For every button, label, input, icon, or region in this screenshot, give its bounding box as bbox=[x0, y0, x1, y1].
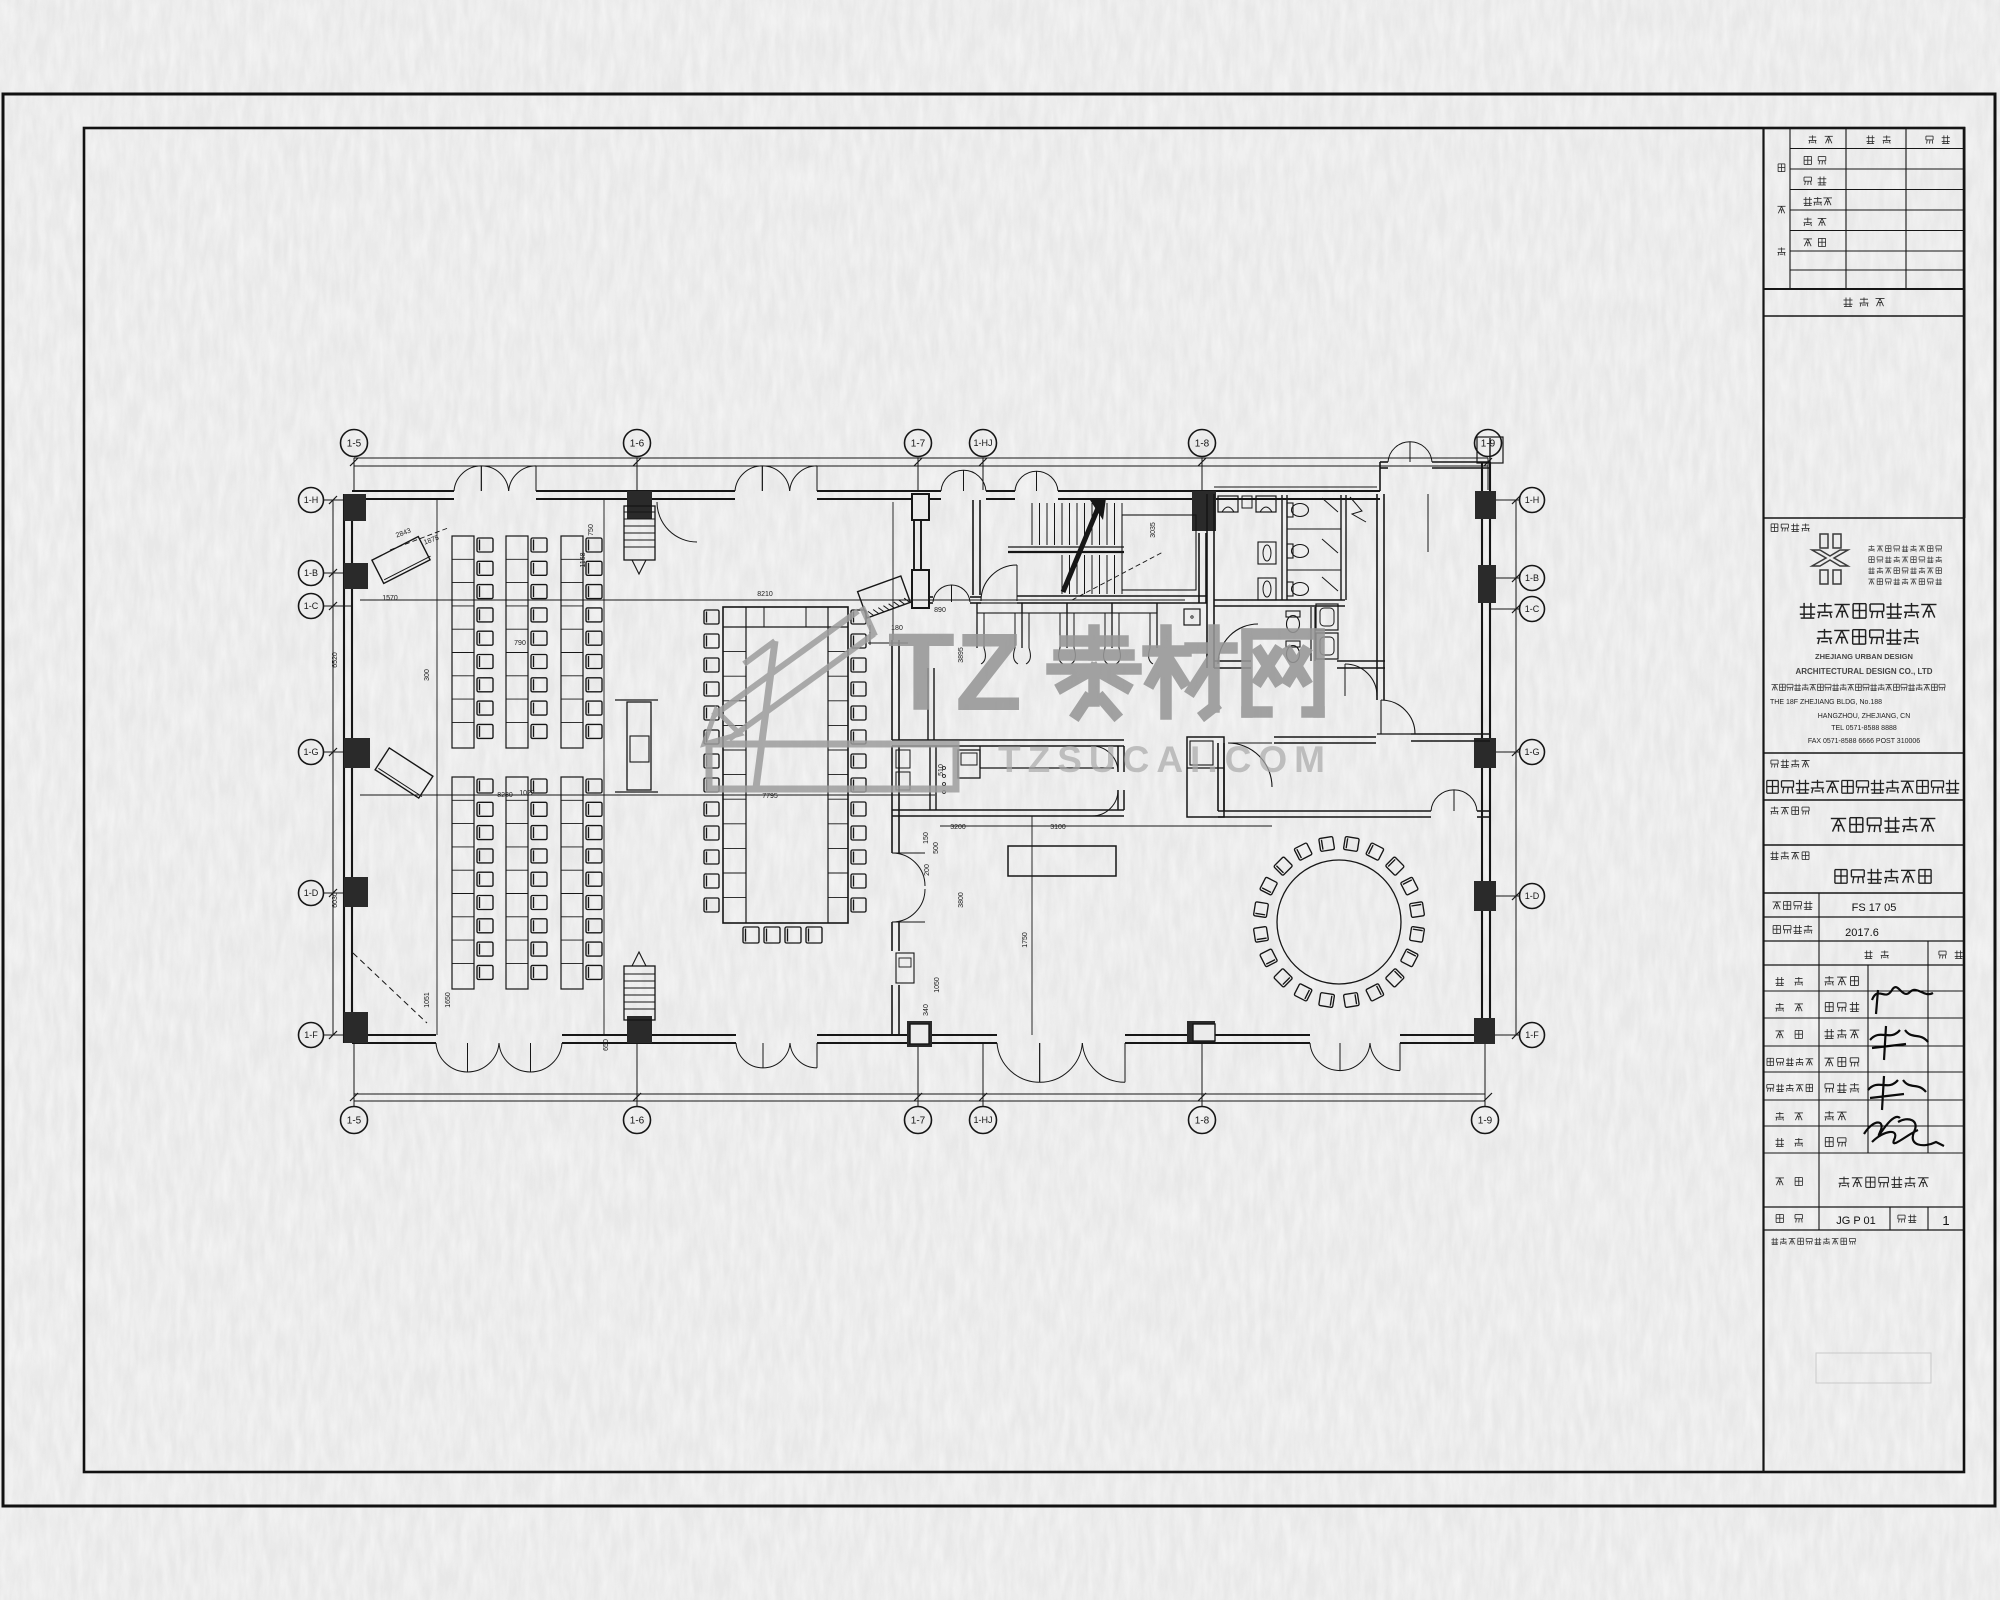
svg-text:1022: 1022 bbox=[519, 790, 535, 797]
svg-text:1-H: 1-H bbox=[304, 495, 319, 505]
svg-text:6030: 6030 bbox=[332, 892, 339, 908]
svg-text:1-B: 1-B bbox=[1525, 573, 1539, 583]
svg-text:790: 790 bbox=[514, 640, 526, 647]
svg-text:1-8: 1-8 bbox=[1195, 1116, 1210, 1127]
svg-text:3100: 3100 bbox=[1050, 824, 1066, 831]
svg-text:1-5: 1-5 bbox=[347, 1116, 362, 1127]
svg-text:7795: 7795 bbox=[762, 793, 778, 800]
svg-text:HANGZHOU, ZHEJIANG, CN: HANGZHOU, ZHEJIANG, CN bbox=[1818, 713, 1911, 720]
svg-text:300: 300 bbox=[424, 669, 431, 681]
svg-text:1-G: 1-G bbox=[303, 747, 318, 757]
svg-text:650: 650 bbox=[603, 1039, 610, 1051]
svg-text:1-7: 1-7 bbox=[911, 439, 926, 450]
svg-text:TZSUCAI.COM: TZSUCAI.COM bbox=[998, 739, 1332, 780]
svg-text:1-8: 1-8 bbox=[1195, 439, 1210, 450]
svg-text:1-5: 1-5 bbox=[347, 439, 362, 450]
svg-text:1-9: 1-9 bbox=[1481, 439, 1496, 450]
svg-text:3800: 3800 bbox=[958, 892, 965, 908]
svg-text:1750: 1750 bbox=[1022, 932, 1029, 948]
svg-text:1-C: 1-C bbox=[304, 601, 319, 611]
svg-text:1-H: 1-H bbox=[1525, 495, 1540, 505]
svg-text:THE 18F ZHEJIANG BLDG, No.188: THE 18F ZHEJIANG BLDG, No.188 bbox=[1770, 699, 1882, 706]
svg-text:1-9: 1-9 bbox=[1478, 1116, 1493, 1127]
svg-text:1-D: 1-D bbox=[304, 888, 319, 898]
svg-text:TEL 0571-8588 8888: TEL 0571-8588 8888 bbox=[1831, 725, 1897, 732]
svg-text:1650: 1650 bbox=[445, 992, 452, 1008]
svg-text:1-6: 1-6 bbox=[630, 1116, 645, 1127]
svg-text:1-G: 1-G bbox=[1524, 747, 1539, 757]
svg-text:1-B: 1-B bbox=[304, 568, 318, 578]
svg-text:ZHEJIANG URBAN DESIGN: ZHEJIANG URBAN DESIGN bbox=[1815, 652, 1913, 661]
svg-text:8210: 8210 bbox=[757, 591, 773, 598]
svg-text:FAX 0571-8588 6666 POST 310: FAX 0571-8588 6666 POST 310006 bbox=[1808, 738, 1920, 745]
svg-text:FS 17 05: FS 17 05 bbox=[1852, 902, 1897, 914]
svg-text:6520: 6520 bbox=[332, 652, 339, 668]
svg-text:200: 200 bbox=[924, 864, 931, 876]
svg-text:1-6: 1-6 bbox=[630, 439, 645, 450]
svg-text:1-F: 1-F bbox=[304, 1030, 318, 1040]
svg-text:3200: 3200 bbox=[950, 824, 966, 831]
svg-text:2017.6: 2017.6 bbox=[1845, 927, 1879, 939]
svg-text:1-C: 1-C bbox=[1525, 604, 1540, 614]
svg-text:1570: 1570 bbox=[382, 595, 398, 602]
svg-text:750: 750 bbox=[588, 524, 595, 536]
svg-text:1050: 1050 bbox=[934, 977, 941, 993]
svg-text:150: 150 bbox=[923, 832, 930, 844]
svg-text:1051: 1051 bbox=[424, 992, 431, 1008]
svg-text:JG P 01: JG P 01 bbox=[1836, 1215, 1876, 1227]
svg-text:1-7: 1-7 bbox=[911, 1116, 926, 1127]
svg-text:8280: 8280 bbox=[497, 792, 513, 799]
svg-text:340: 340 bbox=[923, 1004, 930, 1016]
svg-text:510: 510 bbox=[938, 764, 945, 776]
svg-text:1: 1 bbox=[1942, 1213, 1949, 1228]
svg-text:1-D: 1-D bbox=[1525, 891, 1540, 901]
svg-text:1-HJ: 1-HJ bbox=[973, 438, 992, 448]
svg-text:500: 500 bbox=[933, 842, 940, 854]
svg-text:1-HJ: 1-HJ bbox=[973, 1115, 992, 1125]
svg-text:1168: 1168 bbox=[580, 552, 587, 567]
svg-text:1-F: 1-F bbox=[1525, 1030, 1539, 1040]
svg-text:3035: 3035 bbox=[1150, 522, 1157, 538]
svg-text:TZ: TZ bbox=[888, 611, 1022, 734]
svg-text:ARCHITECTURAL DESIGN CO., LTD: ARCHITECTURAL DESIGN CO., LTD bbox=[1795, 667, 1932, 676]
